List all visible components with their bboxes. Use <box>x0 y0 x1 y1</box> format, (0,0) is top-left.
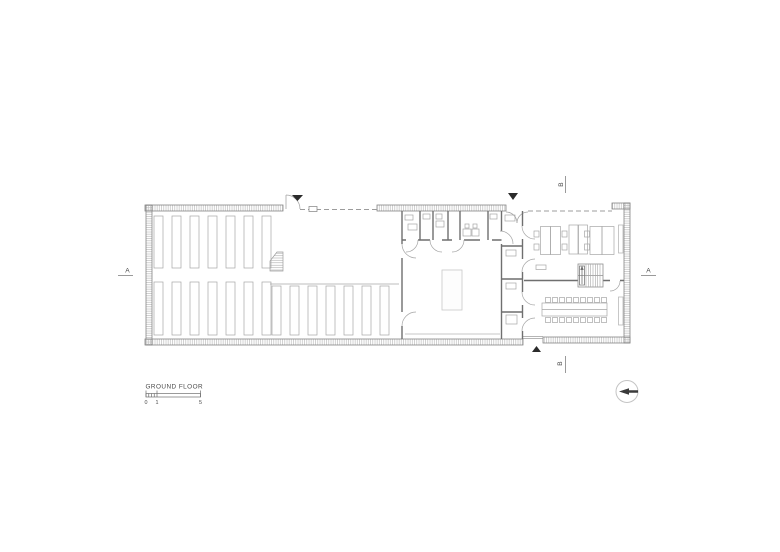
wall-top-middle <box>377 205 506 211</box>
desk-group-1 <box>534 227 567 255</box>
entrance-marker-bottom-icon <box>532 346 541 352</box>
door-bottom-entrance <box>523 337 543 339</box>
section-marker-b-bottom: B <box>557 356 566 373</box>
section-letter-a-right: A <box>646 268 651 275</box>
wall-top-left <box>145 205 283 211</box>
office-door-arc <box>610 281 620 291</box>
staircase <box>578 264 603 287</box>
hall-shelving-rows <box>154 216 399 335</box>
meeting-chairs-bottom <box>546 318 607 323</box>
north-arrow-icon <box>616 381 638 403</box>
wall-bottom-left <box>145 339 523 345</box>
wall-left <box>146 205 152 345</box>
radiator-bottom <box>619 297 624 325</box>
entrance-marker-top-left-icon <box>292 195 303 201</box>
drawing-title: GROUND FLOOR <box>146 384 204 391</box>
scale-bar <box>146 391 201 398</box>
section-letter-a-left: A <box>125 268 130 275</box>
scale-label-1: 1 <box>156 400 159 406</box>
door-top-middle <box>506 212 528 223</box>
section-marker-b-top: B <box>558 176 566 193</box>
section-letter-b-bottom: B <box>557 361 564 366</box>
shelving-row-top <box>154 216 271 268</box>
section-marker-a-right: A <box>641 268 656 276</box>
meeting-chairs-top <box>546 298 607 303</box>
hall-ramp-stair <box>270 252 283 271</box>
floor-plan-sheet: A A B B GROUND FLOOR <box>0 0 780 552</box>
outer-walls <box>145 203 630 345</box>
scale-label-5: 5 <box>199 400 202 406</box>
service-block <box>402 211 535 339</box>
floor-plan-drawing: A A B B GROUND FLOOR <box>0 0 780 552</box>
main-room-table <box>442 270 462 310</box>
office-area <box>524 225 624 325</box>
scale-label-0: 0 <box>145 400 148 406</box>
section-marker-a-left: A <box>118 268 133 276</box>
meeting-table <box>542 298 607 323</box>
shelving-row-bottom-left <box>154 282 271 335</box>
wall-right <box>624 203 630 343</box>
title-block: GROUND FLOOR 0 1 5 <box>145 384 204 407</box>
wall-bottom-right <box>543 337 630 343</box>
desk-group-3 <box>585 227 615 255</box>
sideboard <box>536 265 546 270</box>
shelving-row-bottom-right <box>270 284 399 335</box>
section-letter-b-top: B <box>558 182 565 187</box>
entrance-marker-top-mid-icon <box>508 193 518 200</box>
facade-pier <box>309 207 317 212</box>
radiator-top <box>619 225 624 253</box>
